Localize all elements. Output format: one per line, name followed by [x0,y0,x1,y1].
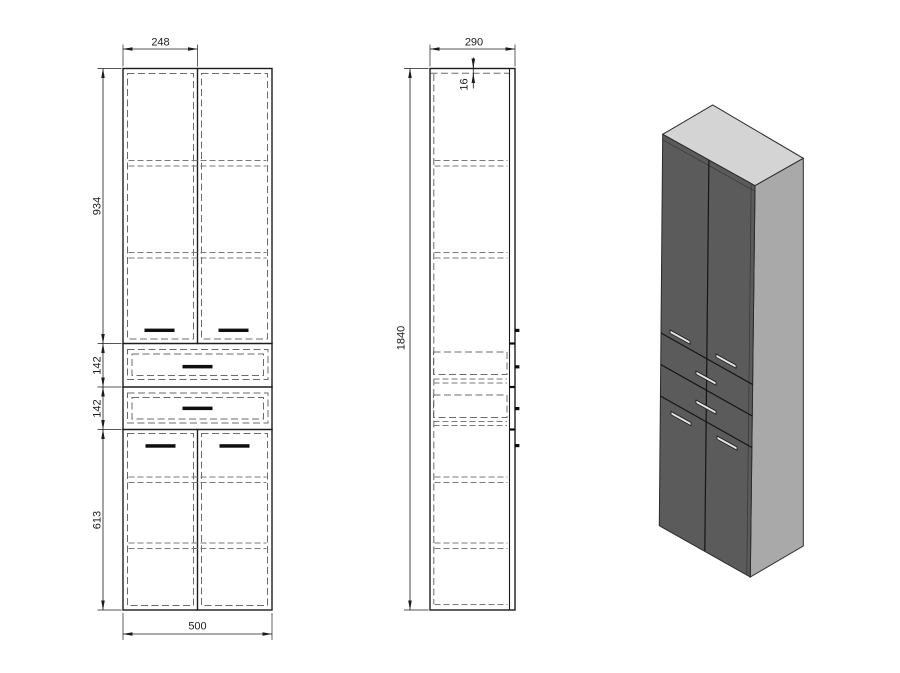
front-drawer1-inner-outline [132,354,264,376]
dim-label-panel-thickness: 16 [459,78,471,90]
side-carcass-outline [430,69,515,611]
technical-drawing-canvas: 248 934 142 142 613 500 290 16 18 [0,0,900,673]
dim-label-door-width: 248 [151,37,169,49]
lower-left-door-handle [146,444,176,448]
front-lower-left-door-outline [128,434,194,606]
dimensions: 248 934 142 142 613 500 290 16 18 [92,37,516,641]
drawer2-handle [183,407,213,411]
drawing-sheet: 248 934 142 142 613 500 290 16 18 [0,0,900,673]
isometric-view [659,105,803,577]
dim-label-upper-section: 934 [92,197,104,215]
upper-right-door-handle [219,329,249,332]
front-upper-right-door-outline [202,74,268,340]
dim-label-total-width: 500 [188,621,206,633]
front-upper-left-door-outline [128,74,194,340]
dim-label-total-height: 1840 [396,326,408,350]
dim-label-lower-section: 613 [92,511,104,529]
section-gap-mark [510,386,516,388]
handle-profile-mark [515,407,520,410]
handle-profile-mark [515,444,520,447]
iso-side-face [750,158,803,577]
side-drawer2-outline [434,395,508,418]
front-lower-right-door-outline [202,434,268,606]
front-view [123,69,272,611]
side-drawer1-outline [434,352,508,375]
lower-right-door-handle [220,444,250,448]
side-view [430,69,519,611]
drawer1-handle [183,365,213,369]
section-gap-mark [510,428,516,430]
side-front-gap-marks [510,342,516,430]
section-gap-mark [510,342,516,344]
handle-profile-mark [515,365,520,368]
dim-label-drawer2: 142 [92,399,104,417]
handle-profile-mark [515,329,520,332]
dim-label-drawer1: 142 [92,356,104,374]
side-shelf-lines [435,161,508,605]
dim-label-depth: 290 [465,37,483,49]
upper-left-door-handle [145,329,175,332]
